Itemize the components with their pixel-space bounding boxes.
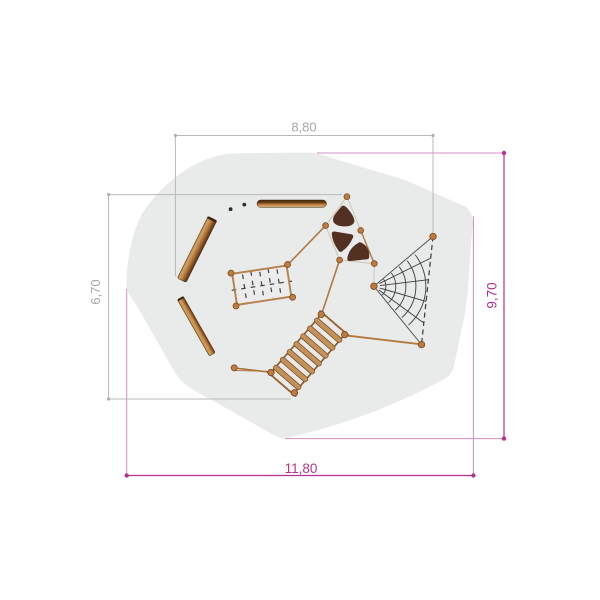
svg-text:8,80: 8,80 [291,120,316,135]
svg-text:9,70: 9,70 [485,282,500,308]
svg-text:6,70: 6,70 [88,279,103,304]
svg-text:11,80: 11,80 [285,461,318,476]
